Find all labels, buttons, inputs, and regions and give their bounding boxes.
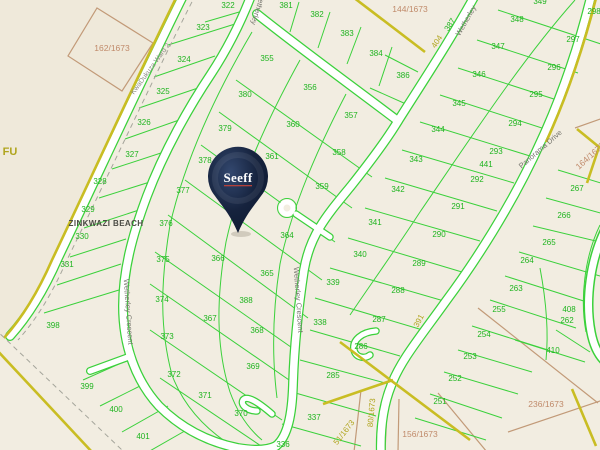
parcel-number-label: 265: [542, 238, 556, 247]
parcel-number-label: 364: [280, 231, 294, 240]
parcel-number-label: 372: [167, 370, 181, 379]
parcel-number-label: 358: [332, 148, 346, 157]
parcel-number-label: 401: [136, 432, 150, 441]
parcel-number-label: 295: [529, 90, 543, 99]
parcel-number-label: 367: [203, 314, 217, 323]
parcel-number-label: 382: [310, 10, 324, 19]
parcel-number-label: 410: [546, 346, 560, 355]
deed-parcel-label: 156/1673: [402, 429, 438, 439]
parcel-number-label: 341: [368, 218, 382, 227]
parcel-number-label: 344: [431, 125, 445, 134]
parcel-number-label: 365: [260, 269, 274, 278]
deed-parcel-label: 236/1673: [528, 399, 564, 409]
parcel-number-label: 293: [489, 147, 503, 156]
place-name-label: ZINKWAZI BEACH: [69, 219, 144, 228]
parcel-number-label: 369: [246, 362, 260, 371]
parcel-number-label: 324: [177, 55, 191, 64]
parcel-number-label: 342: [391, 185, 405, 194]
parcel-number-label: 296: [547, 63, 561, 72]
parcel-number-label: 345: [452, 99, 466, 108]
parcel-number-label: 376: [159, 219, 173, 228]
parcel-number-label: 340: [353, 250, 367, 259]
parcel-number-label: 287: [372, 315, 386, 324]
pin-shadow: [231, 231, 251, 237]
parcel-number-label: 383: [340, 29, 354, 38]
parcel-number-label: 254: [477, 330, 491, 339]
parcel-number-label: 322: [221, 1, 235, 10]
parcel-number-label: 326: [137, 118, 151, 127]
parcel-number-label: 377: [176, 186, 190, 195]
parcel-number-label: 379: [218, 124, 232, 133]
parcel-number-label: 375: [156, 255, 170, 264]
parcel-number-label: 408: [562, 305, 576, 314]
parcel-number-label: 262: [560, 316, 574, 325]
farm-parcel-label: FU: [3, 146, 18, 158]
parcel-number-label: 366: [211, 254, 225, 263]
pin-brand-label: Seeff: [224, 170, 253, 185]
cadastral-map[interactable]: 3223233243253263273283293303313983994004…: [0, 0, 600, 450]
parcel-number-label: 255: [492, 305, 506, 314]
parcel-number-label: 348: [510, 15, 524, 24]
parcel-number-label: 290: [432, 230, 446, 239]
parcel-number-label: 323: [196, 23, 210, 32]
parcel-number-label: 288: [391, 286, 405, 295]
parcel-number-label: 337: [307, 413, 321, 422]
parcel-number-label: 399: [80, 382, 94, 391]
parcel-number-label: 360: [286, 120, 300, 129]
parcel-number-label: 289: [412, 259, 426, 268]
parcel-number-label: 292: [470, 175, 484, 184]
parcel-number-label: 252: [448, 374, 462, 383]
deed-parcel-label: 144/1673: [392, 4, 428, 14]
parcel-number-label: 371: [198, 391, 212, 400]
parcel-number-label: 336: [276, 440, 290, 449]
parcel-number-label: 441: [479, 160, 493, 169]
map-canvas[interactable]: 3223233243253263273283293303313983994004…: [0, 0, 600, 450]
parcel-number-label: 349: [533, 0, 547, 6]
parcel-number-label: 253: [463, 352, 477, 361]
parcel-number-label: 329: [81, 205, 95, 214]
parcel-number-label: 291: [451, 202, 465, 211]
parcel-number-label: 339: [326, 278, 340, 287]
parcel-number-label: 370: [234, 409, 248, 418]
parcel-number-label: 355: [260, 54, 274, 63]
parcel-number-label: 325: [156, 87, 170, 96]
parcel-number-label: 373: [160, 332, 174, 341]
parcel-number-label: 388: [239, 296, 253, 305]
parcel-number-label: 361: [265, 152, 279, 161]
parcel-number-label: 374: [155, 295, 169, 304]
parcel-number-label: 357: [344, 111, 358, 120]
parcel-number-label: 264: [520, 256, 534, 265]
parcel-number-label: 347: [491, 42, 505, 51]
parcel-number-label: 251: [433, 397, 447, 406]
parcel-number-label: 266: [557, 211, 571, 220]
parcel-number-label: 378: [198, 156, 212, 165]
parcel-number-label: 343: [409, 155, 423, 164]
parcel-number-label: 330: [75, 232, 89, 241]
parcel-number-label: 294: [508, 119, 522, 128]
parcel-number-label: 380: [238, 90, 252, 99]
parcel-number-label: 368: [250, 326, 264, 335]
parcel-number-label: 286: [354, 342, 368, 351]
parcel-number-label: 398: [46, 321, 60, 330]
parcel-number-label: 298: [587, 7, 600, 16]
parcel-number-label: 400: [109, 405, 123, 414]
parcel-number-label: 331: [60, 260, 74, 269]
parcel-number-label: 327: [125, 150, 139, 159]
parcel-number-label: 384: [369, 49, 383, 58]
parcel-number-label: 328: [93, 177, 107, 186]
parcel-number-label: 285: [326, 371, 340, 380]
parcel-number-label: 346: [472, 70, 486, 79]
parcel-number-label: 297: [566, 35, 580, 44]
parcel-number-label: 356: [303, 83, 317, 92]
parcel-number-label: 386: [396, 71, 410, 80]
parcel-number-label: 263: [509, 284, 523, 293]
parcel-number-label: 267: [570, 184, 584, 193]
pin-brand-underline: [224, 185, 252, 186]
parcel-number-label: 359: [315, 182, 329, 191]
parcel-number-label: 338: [313, 318, 327, 327]
deed-parcel-label: 162/1673: [94, 43, 130, 53]
parcel-number-label: 381: [279, 1, 293, 10]
